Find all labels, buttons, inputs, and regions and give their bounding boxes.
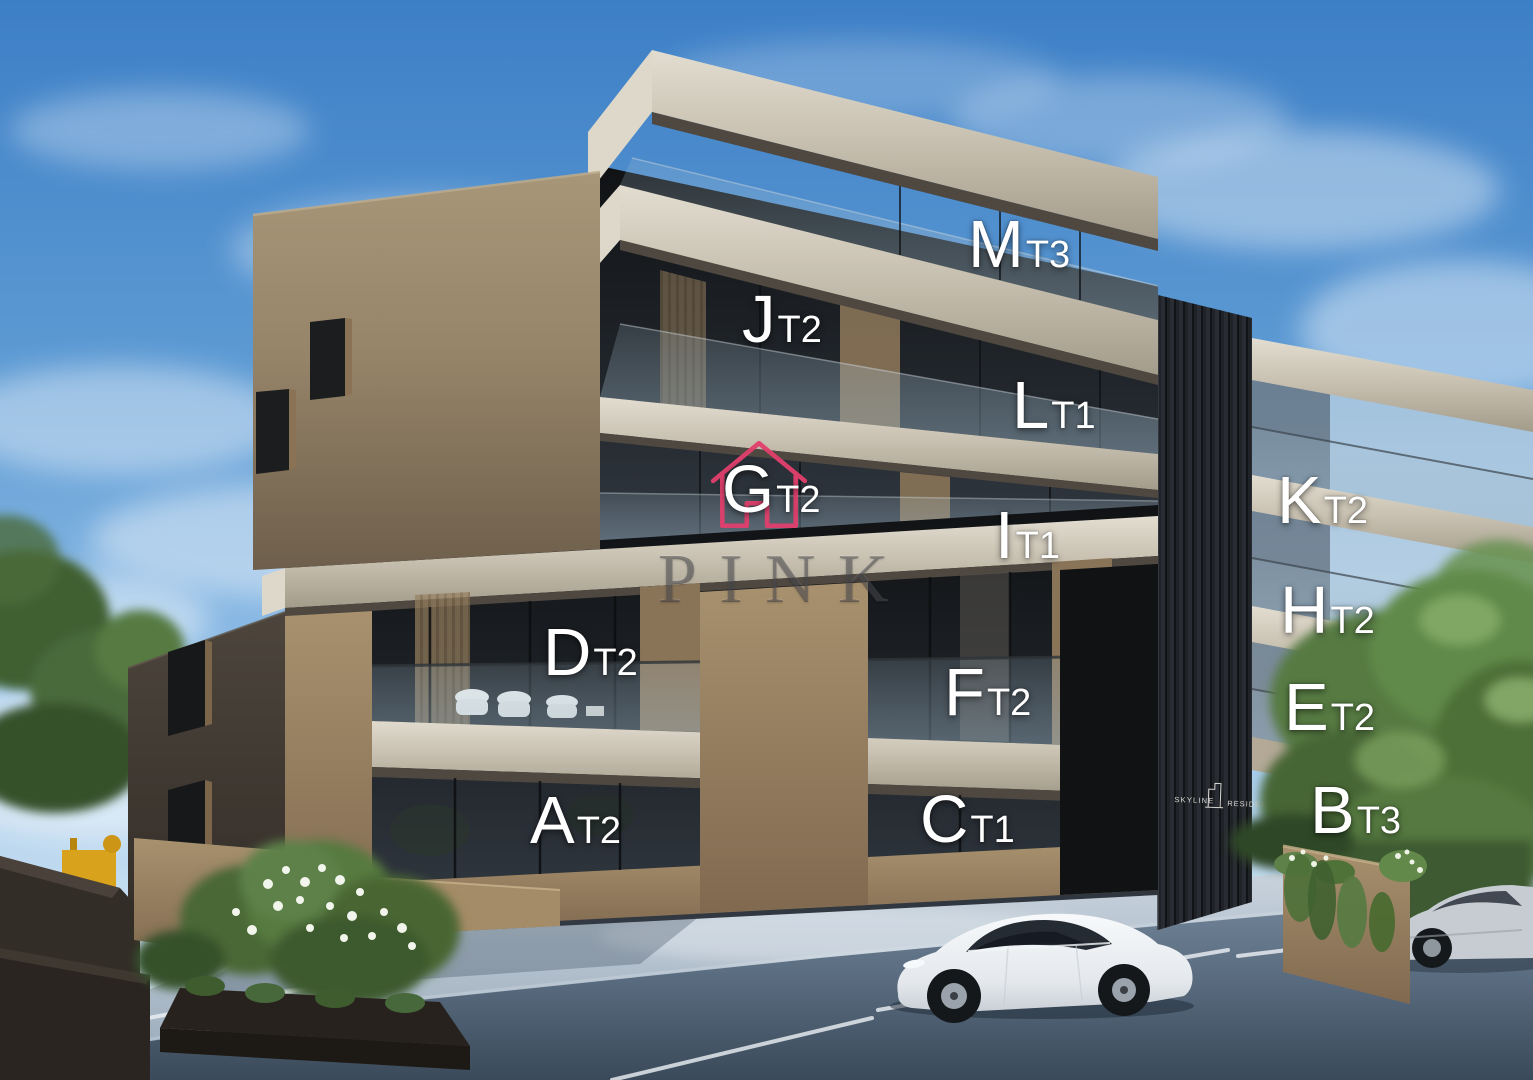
building-rendering: SKYLINE RESIDENCE [0,0,1533,1080]
entry-recess [1060,564,1158,895]
penthouse-box [253,172,600,570]
window [310,318,345,400]
window [168,640,205,736]
rendering-scene: SKYLINE RESIDENCE [0,0,1533,1080]
slab-cap [262,568,285,616]
wall-pier [700,582,868,913]
window [256,389,289,474]
pink-house-icon [706,438,812,534]
